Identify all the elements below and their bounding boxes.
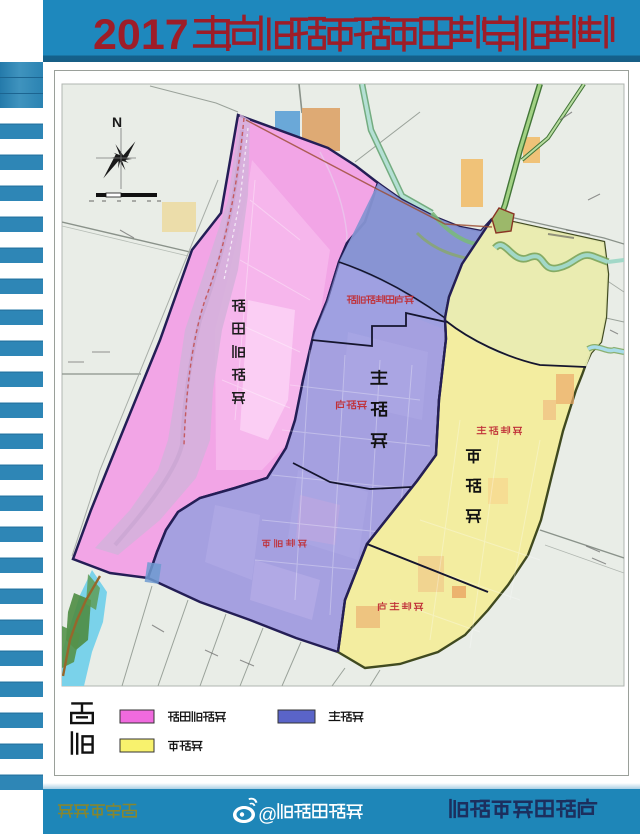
svg-text:2017: 2017 [93,11,189,59]
svg-text:N: N [112,114,122,130]
svg-text:@: @ [258,805,277,826]
